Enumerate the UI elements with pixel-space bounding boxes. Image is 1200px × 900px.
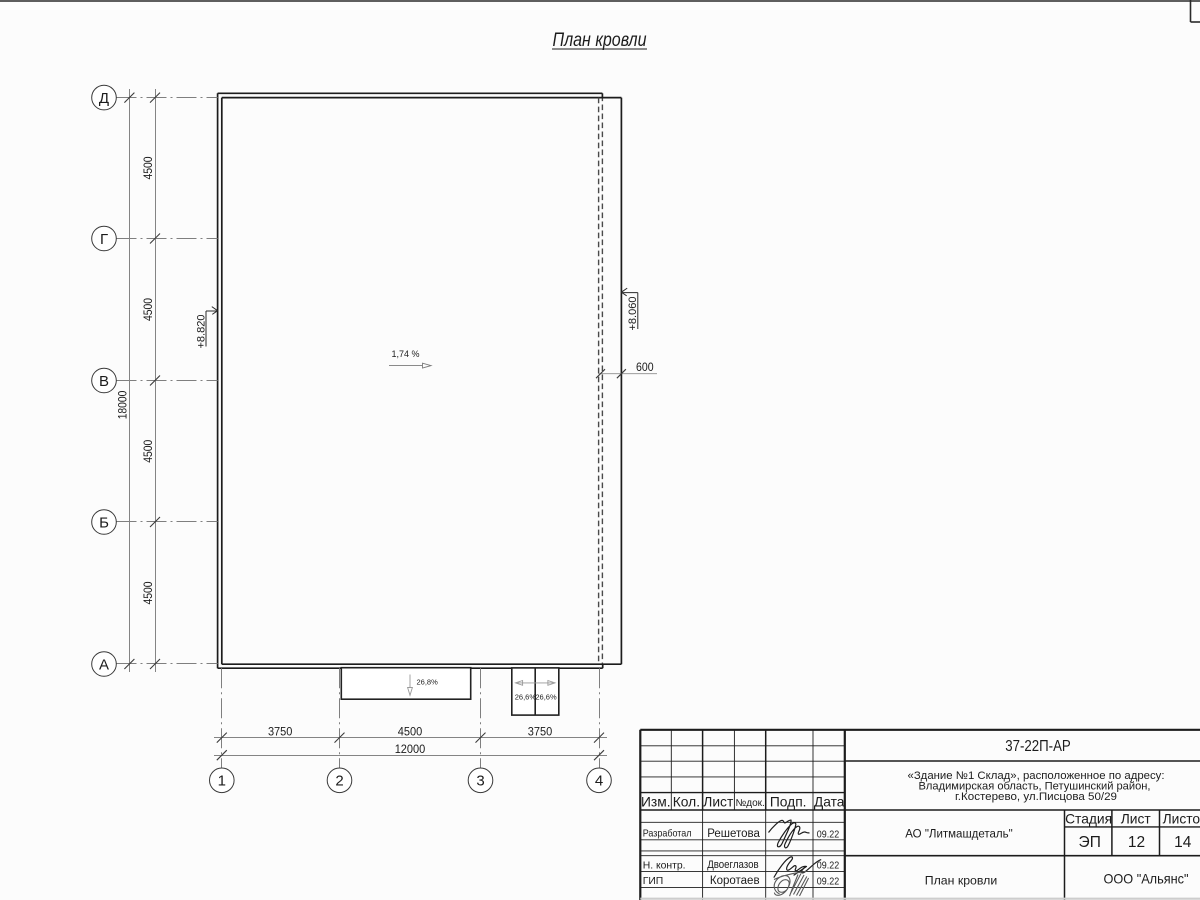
svg-text:В: В — [99, 373, 109, 390]
svg-text:2: 2 — [335, 773, 343, 790]
svg-text:3: 3 — [476, 773, 484, 790]
svg-text:Д: Д — [99, 90, 109, 107]
svg-text:Дата: Дата — [814, 794, 845, 809]
svg-text:4: 4 — [595, 773, 603, 790]
svg-text:1,74 %: 1,74 % — [391, 349, 419, 359]
svg-text:Г: Г — [100, 231, 108, 248]
svg-text:4500: 4500 — [143, 298, 155, 321]
svg-text:4500: 4500 — [398, 725, 423, 739]
svg-text:г.Костерево, ул.Писцова 50/29: г.Костерево, ул.Писцова 50/29 — [955, 791, 1117, 803]
svg-text:37-22П-АР: 37-22П-АР — [1005, 738, 1071, 755]
svg-text:09.22: 09.22 — [817, 829, 840, 840]
svg-text:4500: 4500 — [143, 440, 155, 463]
svg-text:4500: 4500 — [143, 157, 155, 180]
svg-text:09.22: 09.22 — [817, 861, 840, 872]
svg-text:Лист: Лист — [1121, 812, 1152, 827]
svg-text:14: 14 — [1174, 834, 1192, 851]
svg-text:Лист: Лист — [703, 794, 734, 809]
svg-text:Изм.: Изм. — [641, 794, 671, 809]
svg-text:АО "Литмашдеталь": АО "Литмашдеталь" — [905, 829, 1012, 841]
svg-text:12: 12 — [1128, 834, 1145, 851]
svg-text:А: А — [99, 656, 109, 673]
svg-text:ООО "Альянс": ООО "Альянс" — [1104, 872, 1189, 887]
svg-text:План кровли: План кровли — [553, 30, 647, 51]
svg-text:1: 1 — [218, 773, 226, 790]
svg-text:Б: Б — [99, 514, 109, 531]
svg-text:4500: 4500 — [143, 582, 155, 605]
svg-text:12000: 12000 — [395, 742, 426, 756]
svg-text:Разработал: Разработал — [643, 828, 692, 840]
svg-text:26,6%: 26,6% — [515, 692, 537, 701]
svg-text:Стадия: Стадия — [1065, 812, 1112, 827]
svg-text:Подп.: Подп. — [770, 794, 807, 809]
svg-text:26,8%: 26,8% — [417, 678, 439, 687]
svg-text:Кол.: Кол. — [673, 794, 700, 809]
svg-text:+8.060: +8.060 — [627, 297, 639, 331]
svg-text:ЭП: ЭП — [1079, 834, 1101, 851]
svg-text:3750: 3750 — [268, 725, 293, 739]
svg-text:№док.: №док. — [736, 798, 765, 809]
svg-text:26,6%: 26,6% — [535, 692, 557, 701]
svg-text:Коротаев: Коротаев — [710, 875, 760, 887]
svg-text:600: 600 — [636, 360, 654, 374]
svg-text:ГИП: ГИП — [643, 876, 664, 887]
svg-text:Листов: Листов — [1163, 812, 1200, 827]
svg-text:09.22: 09.22 — [817, 876, 840, 887]
svg-text:3750: 3750 — [528, 725, 553, 739]
svg-text:+8.820: +8.820 — [196, 315, 208, 349]
svg-text:Н. контр.: Н. контр. — [643, 860, 686, 871]
svg-text:Решетова: Решетова — [707, 828, 760, 840]
svg-text:Двоеглазов: Двоеглазов — [707, 859, 759, 871]
svg-text:План кровли: План кровли — [925, 873, 998, 887]
svg-text:18000: 18000 — [117, 391, 129, 420]
